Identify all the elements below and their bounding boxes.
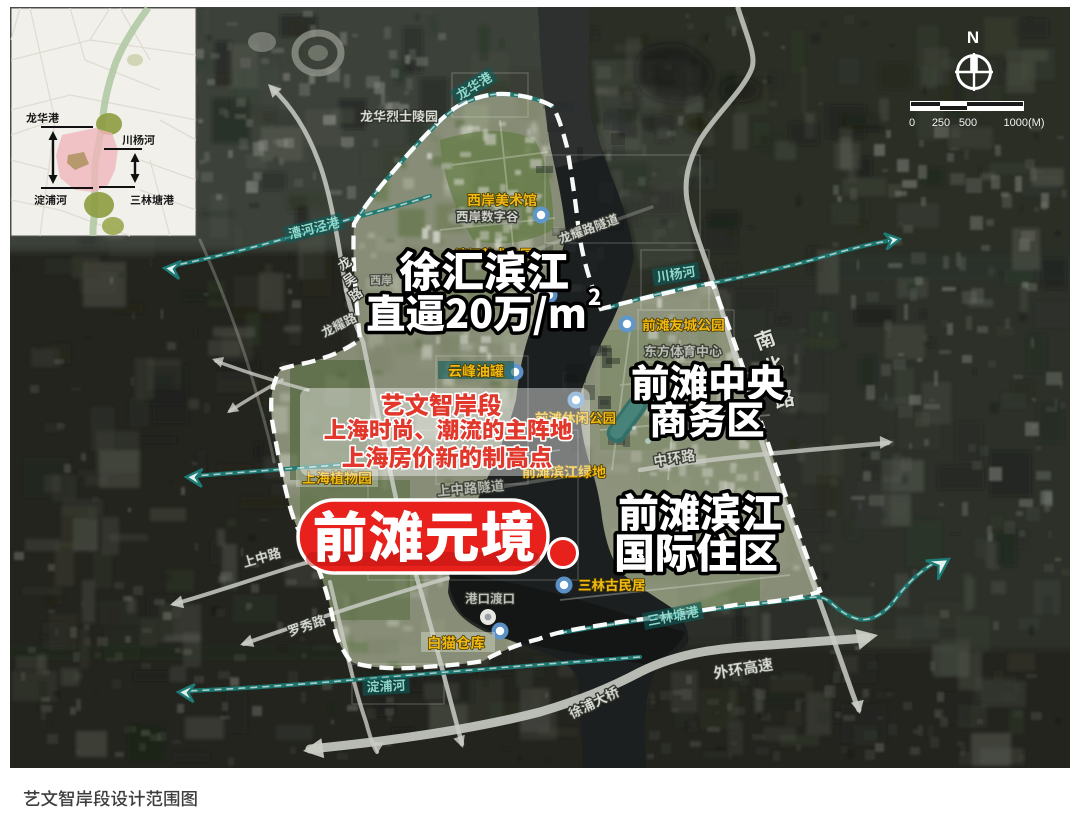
svg-text:500: 500 <box>959 117 977 129</box>
svg-text:1000(M): 1000(M) <box>1004 117 1045 129</box>
svg-text:N: N <box>967 28 979 47</box>
svg-text:0: 0 <box>909 117 915 129</box>
svg-text:250: 250 <box>932 117 950 129</box>
